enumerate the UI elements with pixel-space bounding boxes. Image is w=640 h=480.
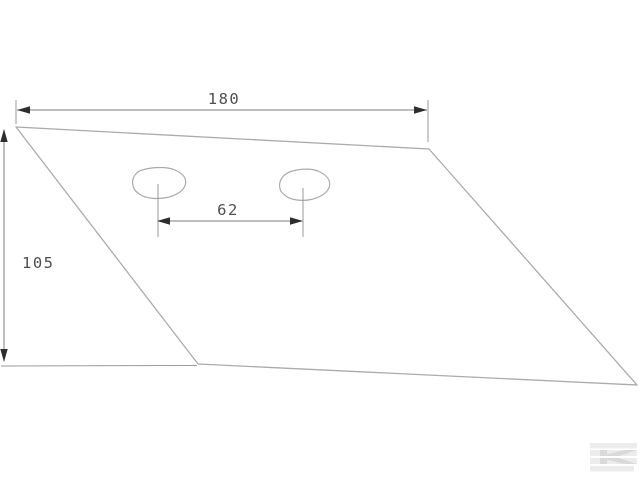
arrowhead-hole-spacing-right: [290, 217, 303, 224]
dimension-label-left-height: 105: [22, 254, 55, 272]
drawing-canvas: 62 180 105: [0, 0, 640, 480]
watermark-gap-3: [589, 464, 640, 466]
arrowhead-height-top: [0, 129, 7, 142]
dimension-label-top-width: 180: [208, 90, 241, 108]
dimension-top-width: 180: [16, 90, 428, 142]
arrowhead-width-left: [17, 106, 30, 113]
arrowhead-height-bottom: [0, 349, 7, 362]
bolt-hole-left: [133, 168, 186, 199]
dimension-hole-spacing: 62: [157, 201, 303, 225]
watermark-stripe-1: [590, 443, 637, 449]
dimension-left-height: 105: [0, 129, 197, 366]
part-outline: [16, 127, 637, 385]
technical-drawing: 62 180 105: [0, 0, 640, 480]
watermark-gap-1: [589, 449, 640, 451]
arrowhead-hole-spacing-left: [157, 217, 170, 224]
arrowhead-width-right: [414, 106, 427, 113]
extension-line-height-bottom: [1, 366, 197, 367]
dimension-label-hole-spacing: 62: [217, 201, 239, 219]
bolt-hole-right: [280, 169, 330, 200]
brand-watermark-k-logo: [589, 443, 640, 472]
watermark-stripe-4: [590, 466, 634, 472]
watermark-gap-2: [589, 456, 640, 458]
